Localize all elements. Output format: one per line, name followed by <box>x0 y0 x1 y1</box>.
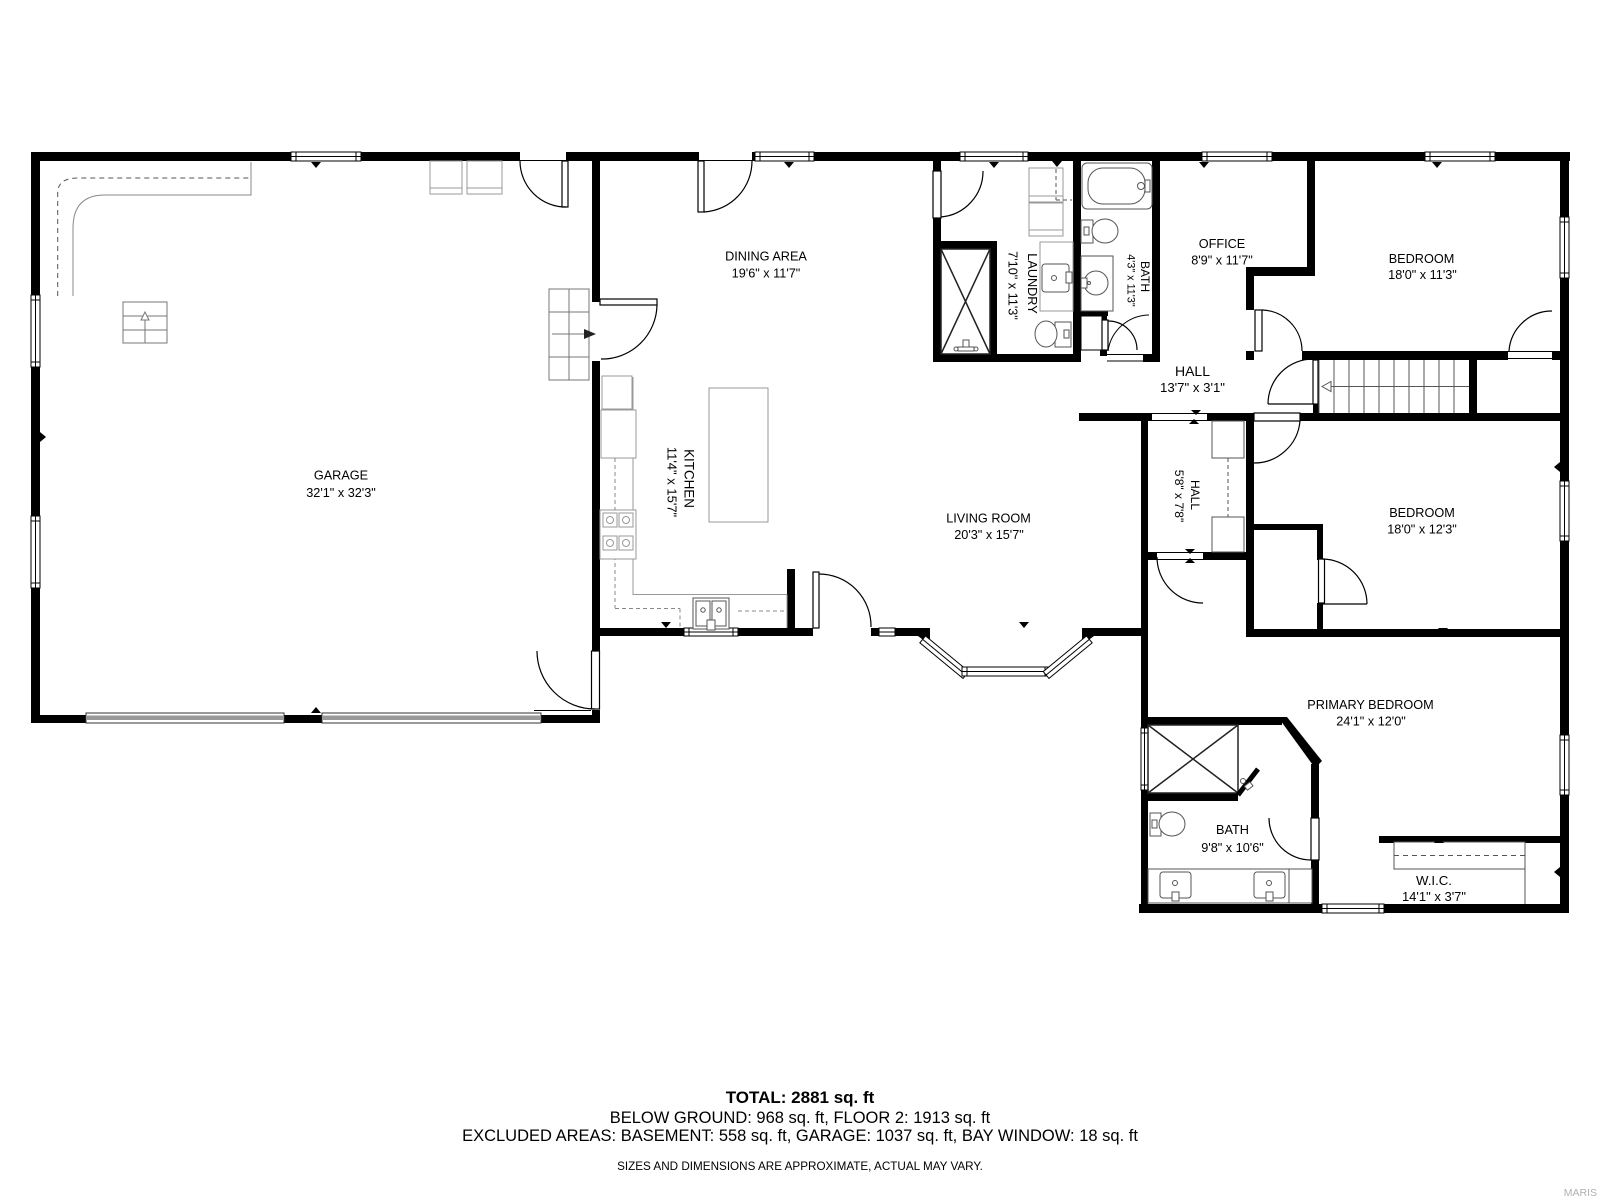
svg-text:KITCHEN: KITCHEN <box>682 449 697 508</box>
svg-text:TOTAL: 2881 sq. ft: TOTAL: 2881 sq. ft <box>726 1088 875 1107</box>
svg-text:LIVING ROOM: LIVING ROOM <box>946 512 1031 526</box>
svg-text:PRIMARY BEDROOM: PRIMARY BEDROOM <box>1307 698 1433 712</box>
svg-text:20'3" x 15'7": 20'3" x 15'7" <box>954 528 1024 542</box>
svg-text:7'10" x 11'3": 7'10" x 11'3" <box>1006 251 1020 320</box>
svg-text:HALL: HALL <box>1188 480 1202 510</box>
svg-text:HALL: HALL <box>1175 363 1210 379</box>
svg-text:BEDROOM: BEDROOM <box>1389 506 1455 520</box>
svg-text:BATH: BATH <box>1138 261 1152 292</box>
svg-text:18'0" x 12'3": 18'0" x 12'3" <box>1387 523 1457 537</box>
svg-text:18'0" x 11'3": 18'0" x 11'3" <box>1388 268 1457 282</box>
svg-text:GARAGE: GARAGE <box>314 469 368 483</box>
svg-text:5'8" x 7'8": 5'8" x 7'8" <box>1172 470 1186 522</box>
svg-text:BELOW GROUND: 968 sq. ft, FLOO: BELOW GROUND: 968 sq. ft, FLOOR 2: 1913 … <box>610 1109 991 1127</box>
svg-text:EXCLUDED AREAS: BASEMENT: 558: EXCLUDED AREAS: BASEMENT: 558 sq. ft, GA… <box>462 1127 1138 1145</box>
svg-text:LAUNDRY: LAUNDRY <box>1025 253 1039 314</box>
svg-text:13'7" x 3'1": 13'7" x 3'1" <box>1160 380 1225 395</box>
svg-text:19'6" x 11'7": 19'6" x 11'7" <box>732 267 801 281</box>
svg-text:24'1" x 12'0": 24'1" x 12'0" <box>1336 715 1406 729</box>
svg-text:OFFICE: OFFICE <box>1199 237 1246 251</box>
svg-text:W.I.C.: W.I.C. <box>1416 873 1452 888</box>
svg-text:32'1" x 32'3": 32'1" x 32'3" <box>306 486 376 500</box>
svg-text:4'3" x 11'3": 4'3" x 11'3" <box>1125 254 1137 307</box>
svg-text:DINING AREA: DINING AREA <box>725 250 807 264</box>
svg-text:BEDROOM: BEDROOM <box>1389 252 1455 266</box>
svg-text:MARIS: MARIS <box>1564 1187 1597 1199</box>
svg-text:BATH: BATH <box>1216 823 1249 837</box>
svg-text:SIZES AND DIMENSIONS ARE APPRO: SIZES AND DIMENSIONS ARE APPROXIMATE, AC… <box>617 1160 983 1173</box>
svg-text:14'1" x 3'7": 14'1" x 3'7" <box>1402 889 1466 904</box>
svg-text:8'9" x 11'7": 8'9" x 11'7" <box>1191 254 1253 268</box>
svg-text:11'4" x 15'7": 11'4" x 15'7" <box>665 447 680 518</box>
svg-text:9'8" x 10'6": 9'8" x 10'6" <box>1201 841 1264 855</box>
